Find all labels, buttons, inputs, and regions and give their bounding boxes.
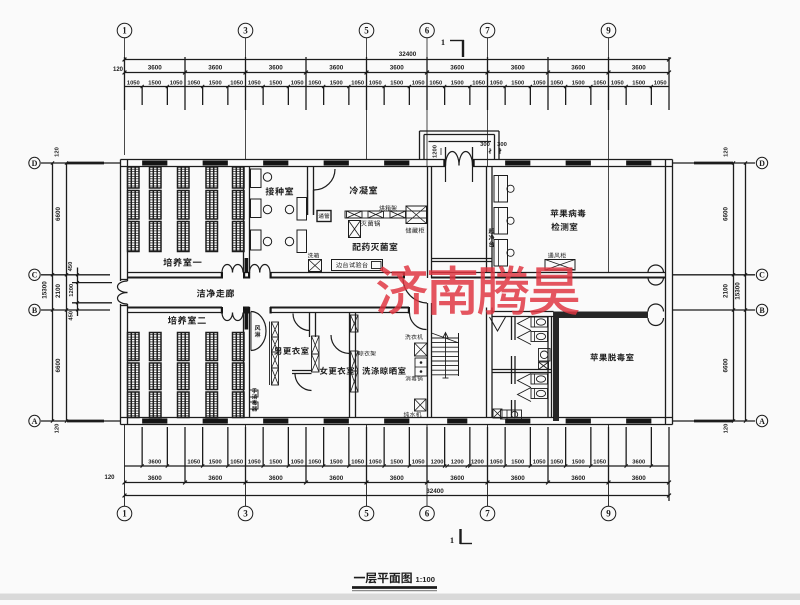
svg-text:6: 6 [425,26,430,36]
svg-text:32400: 32400 [399,51,417,58]
svg-text:300: 300 [497,142,507,148]
svg-text:1500: 1500 [390,460,403,466]
svg-text:3600: 3600 [148,65,163,72]
svg-text:1500: 1500 [209,81,222,87]
svg-text:1050: 1050 [351,81,364,87]
svg-text:1:100: 1:100 [416,575,435,584]
svg-text:3600: 3600 [148,460,161,466]
svg-text:3600: 3600 [390,475,405,482]
svg-text:120: 120 [724,424,730,434]
svg-text:D: D [32,159,38,168]
svg-text:3600: 3600 [632,65,647,72]
svg-text:300: 300 [480,142,490,148]
svg-text:2100: 2100 [723,284,730,299]
svg-text:1050: 1050 [127,81,140,87]
svg-text:1050: 1050 [248,81,261,87]
svg-text:1050: 1050 [429,81,442,87]
svg-text:1050: 1050 [369,81,382,87]
svg-text:1050: 1050 [490,81,503,87]
svg-text:1500: 1500 [330,460,343,466]
svg-text:6600: 6600 [723,358,730,373]
svg-text:3600: 3600 [208,65,223,72]
svg-text:1500: 1500 [269,460,282,466]
svg-text:5: 5 [364,26,369,36]
svg-text:1200: 1200 [433,145,439,158]
svg-text:120: 120 [113,67,124,73]
svg-text:3600: 3600 [571,65,586,72]
svg-text:3600: 3600 [450,475,465,482]
svg-text:C: C [759,271,765,280]
svg-text:1050: 1050 [187,460,200,466]
svg-text:1050: 1050 [611,81,624,87]
svg-text:1050: 1050 [550,460,563,466]
svg-text:3600: 3600 [511,65,526,72]
svg-text:6600: 6600 [55,207,62,222]
svg-text:1500: 1500 [572,460,585,466]
svg-text:1050: 1050 [490,460,503,466]
svg-text:1500: 1500 [269,81,282,87]
svg-text:1: 1 [441,37,445,47]
svg-text:1050: 1050 [308,81,321,87]
svg-text:9: 9 [606,509,611,519]
svg-text:9: 9 [606,26,611,36]
svg-text:1050: 1050 [593,81,606,87]
svg-text:3600: 3600 [269,475,284,482]
svg-text:3: 3 [243,26,248,36]
svg-text:120: 120 [104,475,115,481]
svg-text:1050: 1050 [654,81,667,87]
svg-text:7: 7 [485,509,490,519]
svg-text:120: 120 [55,424,61,434]
svg-text:1500: 1500 [451,81,464,87]
svg-text:450: 450 [68,311,74,321]
svg-text:120: 120 [724,147,730,157]
svg-text:1: 1 [450,535,454,545]
svg-text:1500: 1500 [390,81,403,87]
svg-text:5: 5 [364,509,369,519]
svg-text:1050: 1050 [291,460,304,466]
svg-text:3600: 3600 [632,475,647,482]
svg-text:1050: 1050 [170,81,183,87]
svg-text:1050: 1050 [187,81,200,87]
svg-text:1200: 1200 [69,284,75,297]
svg-text:3600: 3600 [450,65,465,72]
svg-text:1050: 1050 [472,81,485,87]
svg-text:1050: 1050 [230,460,243,466]
svg-text:B: B [32,306,38,315]
svg-text:1500: 1500 [148,81,161,87]
svg-text:1050: 1050 [248,460,261,466]
svg-text:32400: 32400 [426,488,444,495]
svg-text:1200: 1200 [451,460,464,466]
svg-text:1500: 1500 [330,81,343,87]
svg-text:1050: 1050 [533,460,546,466]
svg-text:1050: 1050 [351,460,364,466]
svg-text:1200: 1200 [471,460,484,466]
svg-text:3: 3 [243,509,248,519]
svg-text:2100: 2100 [55,284,62,299]
svg-text:3600: 3600 [329,65,344,72]
svg-text:1050: 1050 [412,81,425,87]
svg-text:1050: 1050 [550,81,563,87]
svg-text:3600: 3600 [208,475,223,482]
svg-text:15300: 15300 [735,282,742,300]
svg-text:1500: 1500 [572,81,585,87]
svg-text:C: C [32,271,38,280]
svg-text:1050: 1050 [308,460,321,466]
svg-text:A: A [32,417,38,426]
svg-text:450: 450 [68,262,74,272]
svg-text:6600: 6600 [55,358,62,373]
svg-text:6: 6 [425,509,430,519]
svg-text:1200: 1200 [431,460,444,466]
svg-text:1050: 1050 [230,81,243,87]
svg-text:1500: 1500 [632,81,645,87]
svg-text:1500: 1500 [209,460,222,466]
svg-text:3600: 3600 [390,65,405,72]
svg-text:3600: 3600 [148,475,163,482]
svg-text:1: 1 [122,509,127,519]
svg-text:3600: 3600 [571,475,586,482]
svg-text:1: 1 [122,26,127,36]
svg-text:120: 120 [55,147,61,157]
svg-text:3600: 3600 [632,460,645,466]
svg-text:1050: 1050 [533,81,546,87]
svg-text:1050: 1050 [593,460,606,466]
svg-text:B: B [759,306,765,315]
svg-text:7: 7 [485,26,490,36]
svg-text:3600: 3600 [269,65,284,72]
svg-text:1500: 1500 [511,81,524,87]
svg-text:A: A [759,417,765,426]
svg-text:1050: 1050 [291,81,304,87]
svg-text:3600: 3600 [329,475,344,482]
svg-text:1050: 1050 [412,460,425,466]
svg-text:15300: 15300 [42,281,49,299]
svg-text:3600: 3600 [511,475,526,482]
svg-text:6600: 6600 [723,207,730,222]
svg-text:D: D [759,159,765,168]
svg-text:1500: 1500 [511,460,524,466]
svg-text:1050: 1050 [369,460,382,466]
